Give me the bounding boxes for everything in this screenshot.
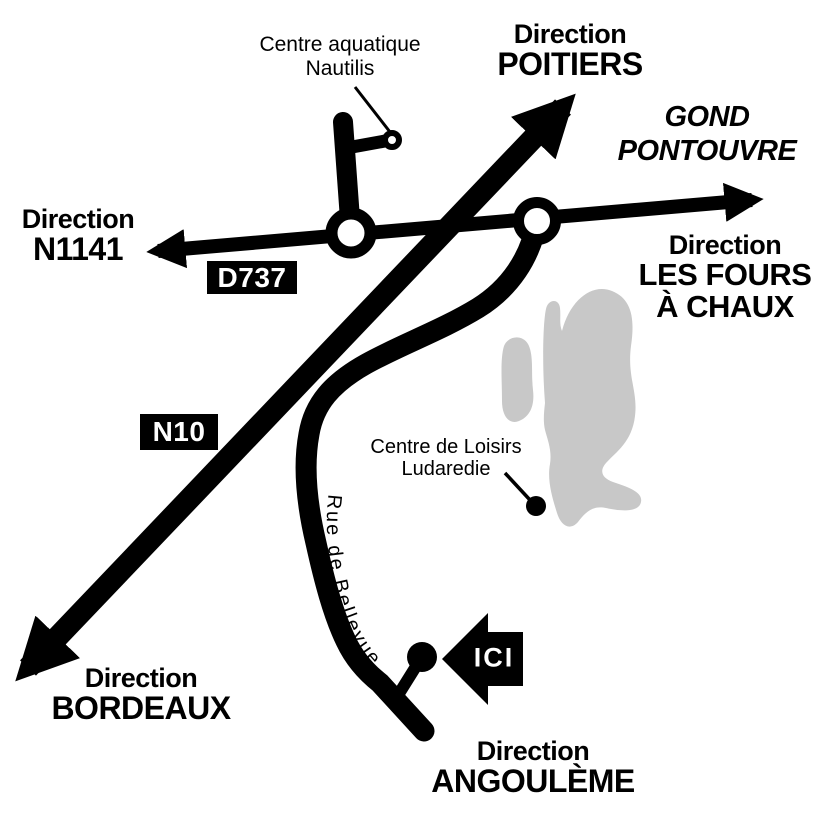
direction-bordeaux-label: Direction BORDEAUX bbox=[51, 664, 230, 725]
direction-prefix: Direction bbox=[639, 231, 812, 259]
direction-angouleme-label: Direction ANGOULÈME bbox=[431, 737, 635, 798]
nautilis-node bbox=[385, 133, 399, 147]
direction-n1141-label: Direction N1141 bbox=[22, 205, 135, 266]
road-n10 bbox=[28, 107, 563, 668]
place-line1: GOND bbox=[618, 100, 797, 134]
here-marker-label: ICI bbox=[474, 643, 515, 674]
nautilis-leader-line bbox=[355, 87, 390, 132]
poi-line1: Centre de Loisirs bbox=[370, 436, 521, 458]
area-small-parcel bbox=[502, 337, 534, 422]
road-nautilis-branch bbox=[352, 141, 385, 147]
direction-city: POITIERS bbox=[497, 48, 642, 81]
gond-pontouvre-label: GOND PONTOUVRE bbox=[618, 100, 797, 168]
direction-prefix: Direction bbox=[51, 664, 230, 692]
direction-les-fours-label: Direction LES FOURS À CHAUX bbox=[639, 231, 812, 323]
direction-city: BORDEAUX bbox=[51, 692, 230, 725]
poi-line1: Centre aquatique bbox=[259, 33, 420, 57]
d737-road-badge: D737 bbox=[207, 261, 297, 294]
access-map: Rue de Bellevue Direction POITIERS Centr… bbox=[0, 0, 828, 827]
direction-prefix: Direction bbox=[497, 20, 642, 48]
n10-road-badge: N10 bbox=[140, 414, 218, 450]
badge-text: D737 bbox=[218, 262, 287, 294]
badge-text: N10 bbox=[153, 416, 206, 448]
direction-road: N1141 bbox=[22, 233, 135, 266]
direction-prefix: Direction bbox=[431, 737, 635, 765]
direction-city: ANGOULÈME bbox=[431, 765, 635, 798]
poi-line2: Ludaredie bbox=[370, 458, 521, 480]
centre-aquatique-label: Centre aquatique Nautilis bbox=[259, 33, 420, 80]
centre-loisirs-label: Centre de Loisirs Ludaredie bbox=[370, 436, 521, 481]
direction-poitiers-label: Direction POITIERS bbox=[497, 20, 642, 81]
area-les-fours-a-chaux bbox=[543, 289, 641, 527]
roundabout-east bbox=[519, 203, 556, 240]
roundabout-west bbox=[332, 214, 371, 253]
direction-place-line1: LES FOURS bbox=[639, 259, 812, 291]
direction-prefix: Direction bbox=[22, 205, 135, 233]
poi-line2: Nautilis bbox=[259, 57, 420, 81]
direction-place-line2: À CHAUX bbox=[639, 291, 812, 323]
place-line2: PONTOUVRE bbox=[618, 134, 797, 168]
here-access-stub bbox=[400, 668, 415, 692]
rue-de-bellevue-label: Rue de Bellevue bbox=[322, 493, 387, 671]
here-dot bbox=[407, 642, 437, 672]
